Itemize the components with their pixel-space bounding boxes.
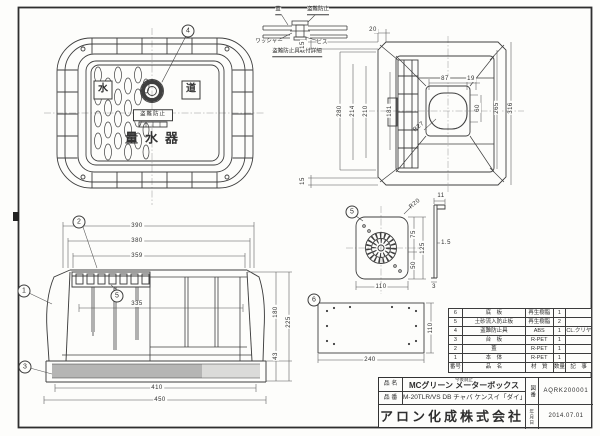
dim-125: 125 xyxy=(420,241,426,255)
model-label: 品 番 xyxy=(379,392,403,405)
callout-3: 3 xyxy=(19,361,32,374)
bolt-detail-title: 盗難防止具取付詳細 xyxy=(272,49,322,57)
table-row: 5土砂流入防止板再生樹脂2 xyxy=(449,318,591,327)
dim-87: 87 xyxy=(440,76,450,82)
table-row: 4盗難防止具ABS1CL.クリヤー xyxy=(449,327,591,336)
dim-180: 180 xyxy=(273,305,279,319)
drawing-no-label: 図番 xyxy=(526,378,539,405)
drawing-no: AQRK200001 xyxy=(539,378,593,405)
bolt-label-lid: 蓋 xyxy=(275,7,281,15)
title-block: 品 名 今後廃止 MCグリーン メーターボックス 品 番 M-20TLR/VS … xyxy=(378,377,592,428)
dim-43: 43 xyxy=(273,351,279,361)
body-plan-view xyxy=(378,42,506,185)
callout-6: 6 xyxy=(308,294,321,307)
parts-table: 6底 板再生樹脂1 5土砂流入防止板再生樹脂2 4盗難防止具ABS1CL.クリヤ… xyxy=(448,308,592,373)
callout-1: 1 xyxy=(18,285,31,298)
bolt-label-screw: ビス xyxy=(316,40,327,46)
dim-50: 50 xyxy=(411,260,417,270)
dim-3: 3 xyxy=(431,284,437,290)
dim-225: 225 xyxy=(286,315,292,329)
dim-316: 316 xyxy=(508,101,514,115)
dim-110-plate: 110 xyxy=(374,284,387,290)
dim-60: 60 xyxy=(475,103,481,113)
model-number: M-20TLR/VS DB チャバ ケンスイ「ダイ」 xyxy=(403,392,526,405)
dim-181: 181 xyxy=(387,104,393,118)
item-name: MCグリーン メーターボックス xyxy=(409,382,519,391)
item-name-label: 品 名 xyxy=(379,378,403,392)
bolt-label-washer: ワッシャー xyxy=(255,39,283,45)
plate-detail-dims xyxy=(356,198,445,290)
dim-390: 390 xyxy=(130,223,144,229)
dim-380: 380 xyxy=(130,238,144,244)
lid-banner-text: 盗難防止 xyxy=(133,109,173,121)
dim-335: 335 xyxy=(130,301,144,307)
dim-210: 210 xyxy=(363,104,369,118)
dim-15-bottom: 15 xyxy=(300,176,306,186)
dim-240: 240 xyxy=(363,357,377,363)
dim-110-base: 110 xyxy=(428,321,434,334)
callout-5-detail: 5 xyxy=(346,206,359,219)
date-value: 2014.07.01 xyxy=(539,405,593,429)
dim-410: 410 xyxy=(150,385,164,391)
table-row: 2蓋R-PET1 xyxy=(449,345,591,354)
dim-19: 19 xyxy=(466,76,476,82)
bolt-detail-view xyxy=(263,14,347,41)
lid-kanji-road: 道 xyxy=(182,81,201,100)
dim-280: 280 xyxy=(337,104,343,118)
lid-meter-text: 量水器 xyxy=(125,128,185,147)
table-row: 1本 体R-PET1 xyxy=(449,354,591,363)
date-label: 年月日 xyxy=(526,405,539,429)
plate-detail-view xyxy=(356,205,445,279)
base-plate-detail-view xyxy=(318,303,424,353)
dim-1-5: 1.5 xyxy=(440,240,452,246)
dim-15-top: 15 xyxy=(300,40,306,50)
lid-kanji-water: 水 xyxy=(94,81,113,100)
dim-20: 20 xyxy=(368,27,378,33)
company-name: アロン化成株式会社 xyxy=(379,405,526,429)
callout-4: 4 xyxy=(182,25,195,38)
dim-265: 265 xyxy=(494,101,500,115)
callout-5-side: 5 xyxy=(111,290,124,303)
bolt-label-device: 盗難防止 xyxy=(307,7,329,15)
item-name-cell: 今後廃止 MCグリーン メーターボックス xyxy=(403,378,526,392)
dim-214: 214 xyxy=(350,104,356,118)
table-row: 6底 板再生樹脂1 xyxy=(449,309,591,318)
table-header-row: 番号品 名材 質数量記 事 xyxy=(449,363,591,372)
callout-2: 2 xyxy=(73,216,86,229)
drawing-sheet: 4 水 道 盗難防止 量水器 蓋 盗難防止 ワッシャー ビス 盗難防止具取付詳細… xyxy=(0,0,600,436)
dim-11: 11 xyxy=(436,193,445,199)
dim-450: 450 xyxy=(153,397,167,403)
side-section-view xyxy=(46,270,266,382)
table-row: 3台 板R-PET1 xyxy=(449,336,591,345)
dim-359: 359 xyxy=(130,253,144,259)
dim-75: 75 xyxy=(411,229,417,239)
base-plate-dims xyxy=(318,303,434,363)
